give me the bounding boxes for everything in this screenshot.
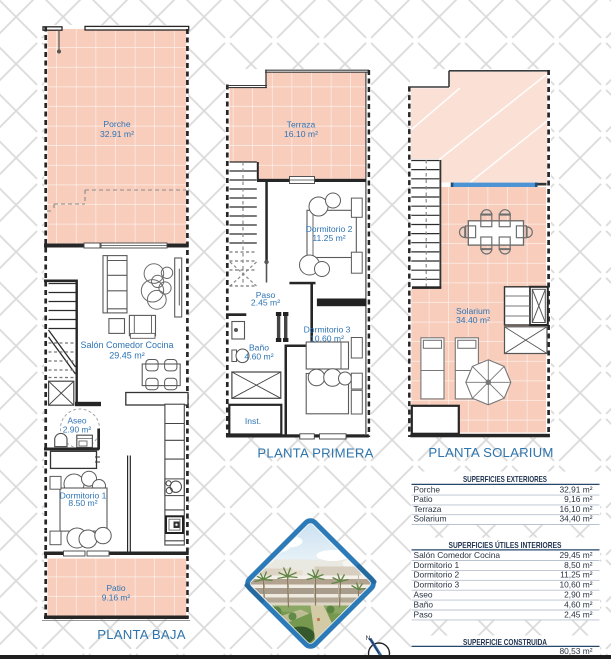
- svg-text:PLANTA BAJA: PLANTA BAJA: [97, 627, 185, 642]
- svg-text:4.60 m²: 4.60 m²: [244, 352, 273, 362]
- svg-text:Terraza: Terraza: [287, 120, 316, 130]
- svg-text:Porche: Porche: [103, 119, 130, 129]
- svg-text:N: N: [366, 635, 371, 642]
- svg-text:32.91 m²: 32.91 m²: [100, 129, 134, 139]
- svg-text:Paso: Paso: [414, 609, 433, 619]
- svg-text:Terraza: Terraza: [414, 504, 442, 514]
- svg-text:Inst.: Inst.: [245, 416, 261, 426]
- svg-text:16,10 m²: 16,10 m²: [559, 504, 592, 514]
- svg-text:9.16 m²: 9.16 m²: [102, 593, 131, 603]
- svg-text:Patio: Patio: [414, 494, 433, 504]
- svg-text:2.90 m²: 2.90 m²: [63, 425, 92, 435]
- svg-text:Patio: Patio: [106, 583, 125, 593]
- svg-text:11,25 m²: 11,25 m²: [560, 570, 593, 580]
- svg-text:29,45 m²: 29,45 m²: [559, 550, 592, 560]
- svg-text:80,53 m²: 80,53 m²: [559, 646, 592, 656]
- svg-text:Salón Comedor Cocina: Salón Comedor Cocina: [80, 340, 173, 350]
- svg-text:4,60 m²: 4,60 m²: [564, 599, 593, 609]
- svg-text:29.45 m²: 29.45 m²: [109, 351, 145, 361]
- svg-text:SUPERFICIE CONSTRUIDA: SUPERFICIE CONSTRUIDA: [463, 638, 547, 647]
- svg-text:Dormitorio 1: Dormitorio 1: [414, 560, 460, 570]
- svg-text:Baño: Baño: [414, 599, 434, 609]
- svg-text:Dormitorio 3: Dormitorio 3: [414, 580, 460, 590]
- svg-text:2,45 m²: 2,45 m²: [564, 609, 593, 619]
- svg-text:Aseo: Aseo: [414, 590, 433, 600]
- svg-text:10,60 m²: 10,60 m²: [559, 580, 592, 590]
- svg-text:Dormitorio 2: Dormitorio 2: [414, 570, 460, 580]
- svg-text:SUPERFICIES EXTERIORES: SUPERFICIES EXTERIORES: [463, 475, 547, 484]
- svg-text:2,90 m²: 2,90 m²: [564, 590, 593, 600]
- svg-text:11.25 m²: 11.25 m²: [312, 233, 345, 243]
- svg-text:34,40 m²: 34,40 m²: [559, 514, 592, 524]
- svg-text:Porche: Porche: [414, 484, 441, 494]
- svg-text:16.10 m²: 16.10 m²: [284, 129, 318, 139]
- svg-text:Salón Comedor Cocina: Salón Comedor Cocina: [414, 550, 501, 560]
- svg-text:Solarium: Solarium: [414, 514, 447, 524]
- svg-text:8,50 m²: 8,50 m²: [564, 560, 593, 570]
- svg-text:9,16 m²: 9,16 m²: [564, 494, 593, 504]
- svg-text:32,91 m²: 32,91 m²: [559, 484, 592, 494]
- svg-text:SUPERFICIES ÚTILES INTERIORES: SUPERFICIES ÚTILES INTERIORES: [449, 539, 562, 550]
- svg-text:8.50 m²: 8.50 m²: [68, 498, 97, 508]
- svg-text:34.40 m²: 34.40 m²: [456, 315, 490, 325]
- svg-text:PLANTA PRIMERA: PLANTA PRIMERA: [257, 446, 373, 461]
- svg-text:PLANTA SOLARIUM: PLANTA SOLARIUM: [428, 445, 553, 460]
- svg-text:2.45 m²: 2.45 m²: [251, 298, 280, 308]
